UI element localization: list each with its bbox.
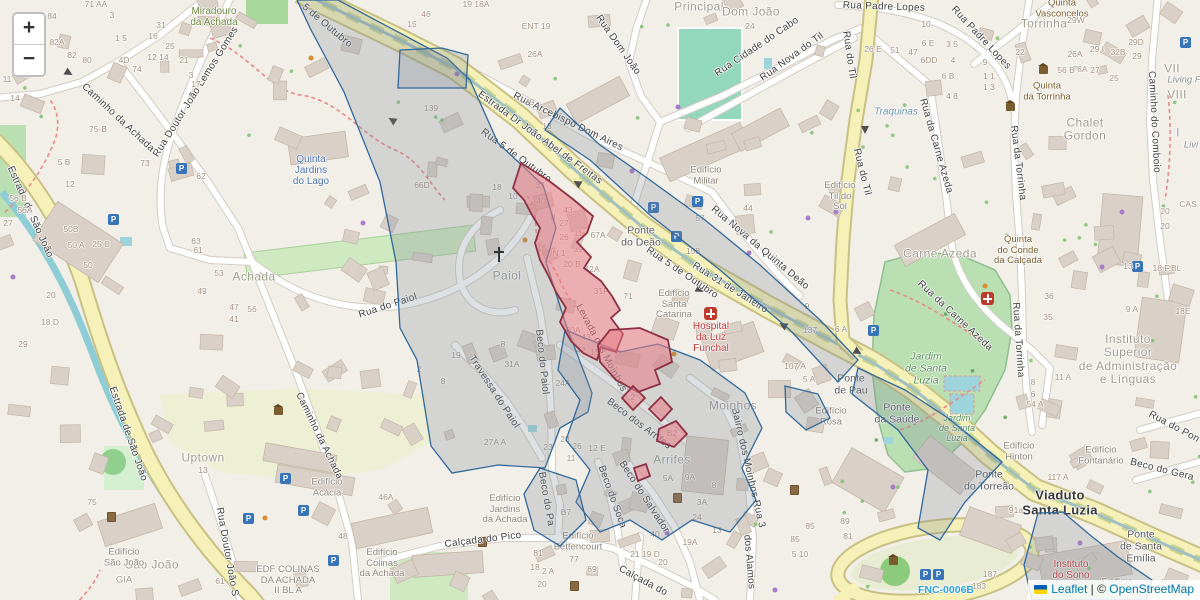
base-map bbox=[0, 0, 1200, 600]
leaflet-link[interactable]: Leaflet bbox=[1051, 582, 1087, 596]
attribution-bar: Leaflet | © OpenStreetMap bbox=[1028, 580, 1200, 600]
zoom-out-button[interactable]: − bbox=[14, 45, 44, 75]
map-canvas[interactable]: PPPPPPPPPPPPPP 5 de OutubroRua 5 de Outu… bbox=[0, 0, 1200, 600]
osm-link[interactable]: OpenStreetMap bbox=[1109, 582, 1194, 596]
copyright-symbol: © bbox=[1097, 582, 1106, 596]
zoom-control: + − bbox=[12, 12, 46, 77]
ukraine-flag-icon bbox=[1034, 585, 1047, 594]
zoom-in-button[interactable]: + bbox=[14, 14, 44, 45]
attribution-separator: | bbox=[1091, 582, 1094, 596]
